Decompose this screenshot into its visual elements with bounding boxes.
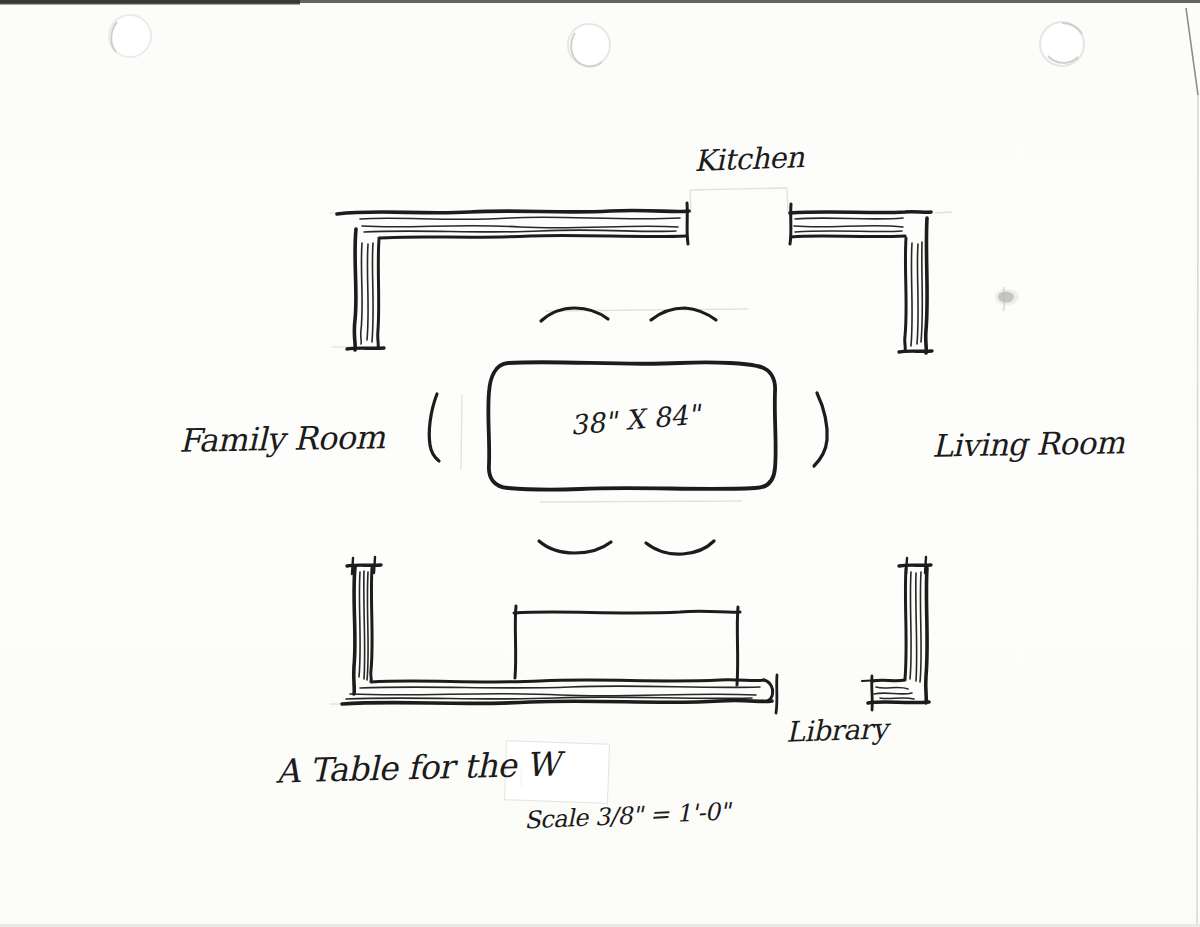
chair-arc-bottom-left [539,541,611,553]
chair-arc-right [814,393,827,466]
wall-bottom-left [347,557,381,694]
living-room-label: Living Room [932,424,1125,463]
chair-arc-bottom-right [646,541,714,554]
sketch-title: A Table for the W [276,744,560,790]
hole-punch-right [1040,22,1084,66]
scanned-paper-sheet: Kitchen Family Room Living Room Library … [0,0,1200,927]
hole-punch-left [109,15,151,57]
hole-punches [109,15,1084,67]
wall-top-left [337,203,689,350]
wall-bottom [342,675,777,713]
chair-arc-left [429,394,439,461]
hole-punch-center [568,24,610,67]
walls [337,203,932,713]
ink-smudge [995,287,1019,311]
wall-top-right [790,204,932,353]
pencil-guide-lines [329,188,952,704]
kitchen-room-label: Kitchen [693,140,804,178]
wall-bottom-right [862,557,931,710]
family-room-label: Family Room [179,418,385,460]
paper-edge-right [1186,8,1198,95]
buffet-outline [514,606,740,685]
library-room-label: Library [785,712,887,749]
